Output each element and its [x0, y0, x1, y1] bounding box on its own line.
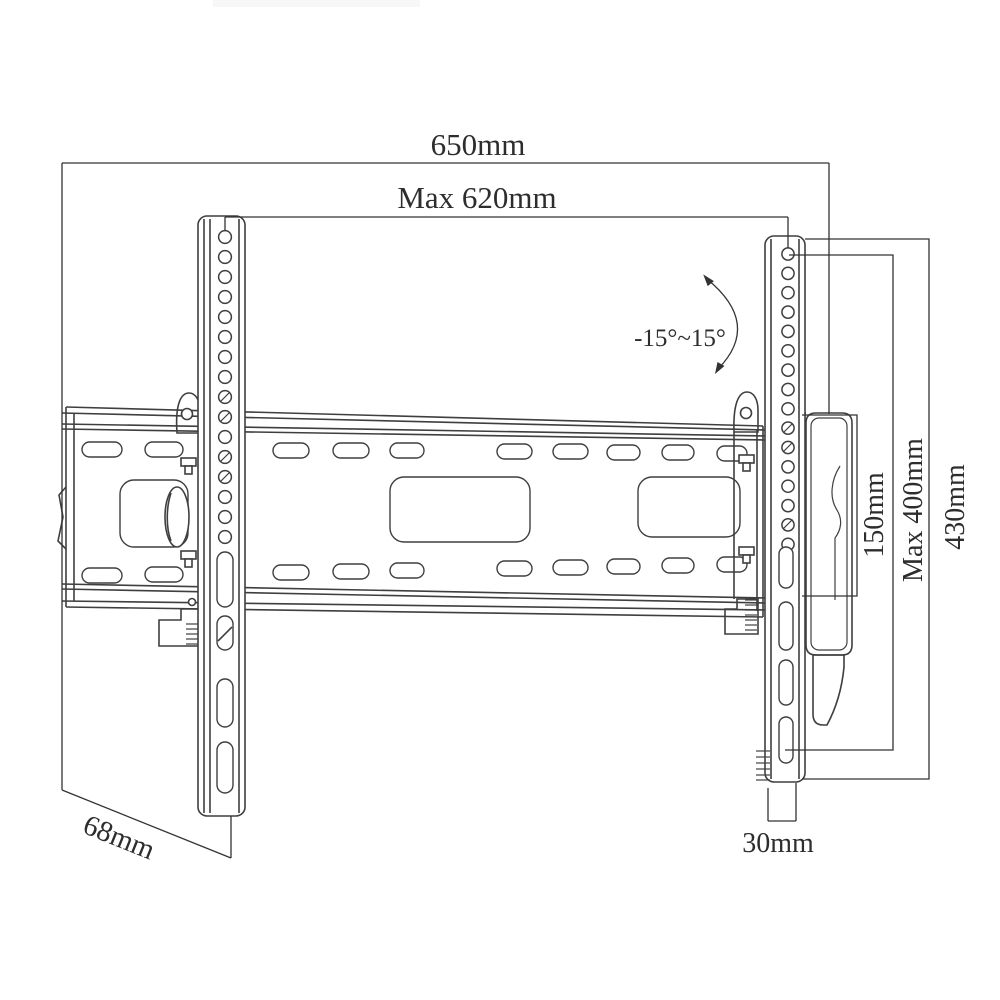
label-max-width: Max 620mm: [397, 180, 556, 215]
vesa-hole: [782, 287, 794, 299]
label-depth-30: 30mm: [742, 828, 814, 859]
wall-plate-bottom-slots: [82, 557, 747, 583]
mount-slot: [273, 565, 309, 580]
vesa-slot: [779, 602, 793, 650]
diagram-canvas: 650mm Max 620mm -15°~15° 150mm Max 400mm…: [0, 0, 1000, 1000]
vesa-hole: [219, 251, 232, 264]
vesa-hole: [219, 491, 232, 504]
vesa-hole: [782, 248, 794, 260]
tv-mount-dimension-diagram: 650mm Max 620mm -15°~15° 150mm Max 400mm…: [0, 0, 1000, 1000]
right-bolt-lower: [739, 547, 754, 555]
label-max-height: Max 400mm: [898, 438, 929, 582]
tilt-arc-arrow: [707, 279, 738, 369]
mount-slot: [82, 568, 122, 583]
top-scan-artifact: [213, 0, 420, 7]
mount-slot: [333, 443, 369, 458]
right-bolt-upper: [739, 455, 754, 463]
vesa-hole: [219, 331, 232, 344]
side-plate-tail: [813, 655, 844, 725]
side-profile-plate: [800, 413, 852, 725]
label-depth-68: 68mm: [79, 809, 160, 867]
mount-slot: [662, 445, 694, 460]
mount-slot: [497, 444, 532, 459]
vesa-hole: [219, 531, 232, 544]
side-plate-notch: [832, 466, 841, 600]
mount-slot: [553, 560, 588, 575]
mount-slot: [82, 442, 122, 457]
label-overall-width: 650mm: [431, 127, 526, 162]
vesa-hole: [219, 351, 232, 364]
vesa-hole: [782, 364, 794, 376]
plate-cutout: [390, 477, 530, 542]
left-hook-hole: [182, 409, 193, 420]
vesa-hole: [782, 519, 794, 531]
dim-span-150: 150mm: [802, 415, 890, 596]
left-bolt-upper: [181, 458, 196, 466]
left-vesa-bracket: [198, 216, 245, 816]
vesa-slot: [217, 742, 233, 793]
mount-slot: [273, 443, 309, 458]
vesa-hole: [782, 403, 794, 415]
mount-slot: [553, 444, 588, 459]
plate-cutout: [638, 477, 740, 537]
mount-slot: [607, 559, 640, 574]
mount-slot: [390, 563, 424, 578]
dim-tilt-range: -15°~15°: [634, 274, 737, 374]
dim-depth-30: 30mm: [742, 783, 814, 859]
right-hook-hole: [741, 408, 752, 419]
dim-overall-width-650: 650mm: [62, 127, 829, 790]
left-latch: [159, 609, 200, 646]
vesa-hole: [782, 267, 794, 279]
label-tilt-range: -15°~15°: [634, 325, 726, 352]
vesa-hole: [219, 291, 232, 304]
mount-slot: [662, 558, 694, 573]
mount-slot: [333, 564, 369, 579]
vesa-slot: [779, 717, 793, 763]
mount-slot: [497, 561, 532, 576]
vesa-hole: [782, 461, 794, 473]
mount-slot: [390, 443, 424, 458]
vesa-hole: [782, 480, 794, 492]
mount-slot: [145, 567, 183, 582]
dim-max-width-620: Max 620mm: [225, 180, 788, 248]
vesa-slot: [217, 552, 233, 607]
vesa-hole: [782, 345, 794, 357]
vesa-hole: [219, 311, 232, 324]
right-latch-spring: [745, 600, 757, 630]
vesa-hole: [782, 306, 794, 318]
vesa-hole: [782, 383, 794, 395]
vesa-hole: [782, 325, 794, 337]
vesa-slot: [217, 679, 233, 727]
vesa-hole: [782, 500, 794, 512]
vesa-hole: [219, 511, 232, 524]
vesa-hole: [219, 271, 232, 284]
right-vesa-bracket: [765, 236, 805, 782]
label-total-height: 430mm: [940, 464, 971, 550]
wall-plate: [58, 407, 766, 617]
vesa-hole: [219, 431, 232, 444]
left-tilt-knob: [165, 487, 189, 547]
vesa-hole: [219, 371, 232, 384]
vesa-slot: [779, 660, 793, 705]
mount-slot: [145, 442, 183, 457]
label-span-150: 150mm: [859, 472, 890, 558]
left-bolt-lower: [181, 551, 196, 559]
vesa-slot: [779, 547, 793, 588]
vesa-hole: [219, 231, 232, 244]
mount-slot: [607, 445, 640, 460]
